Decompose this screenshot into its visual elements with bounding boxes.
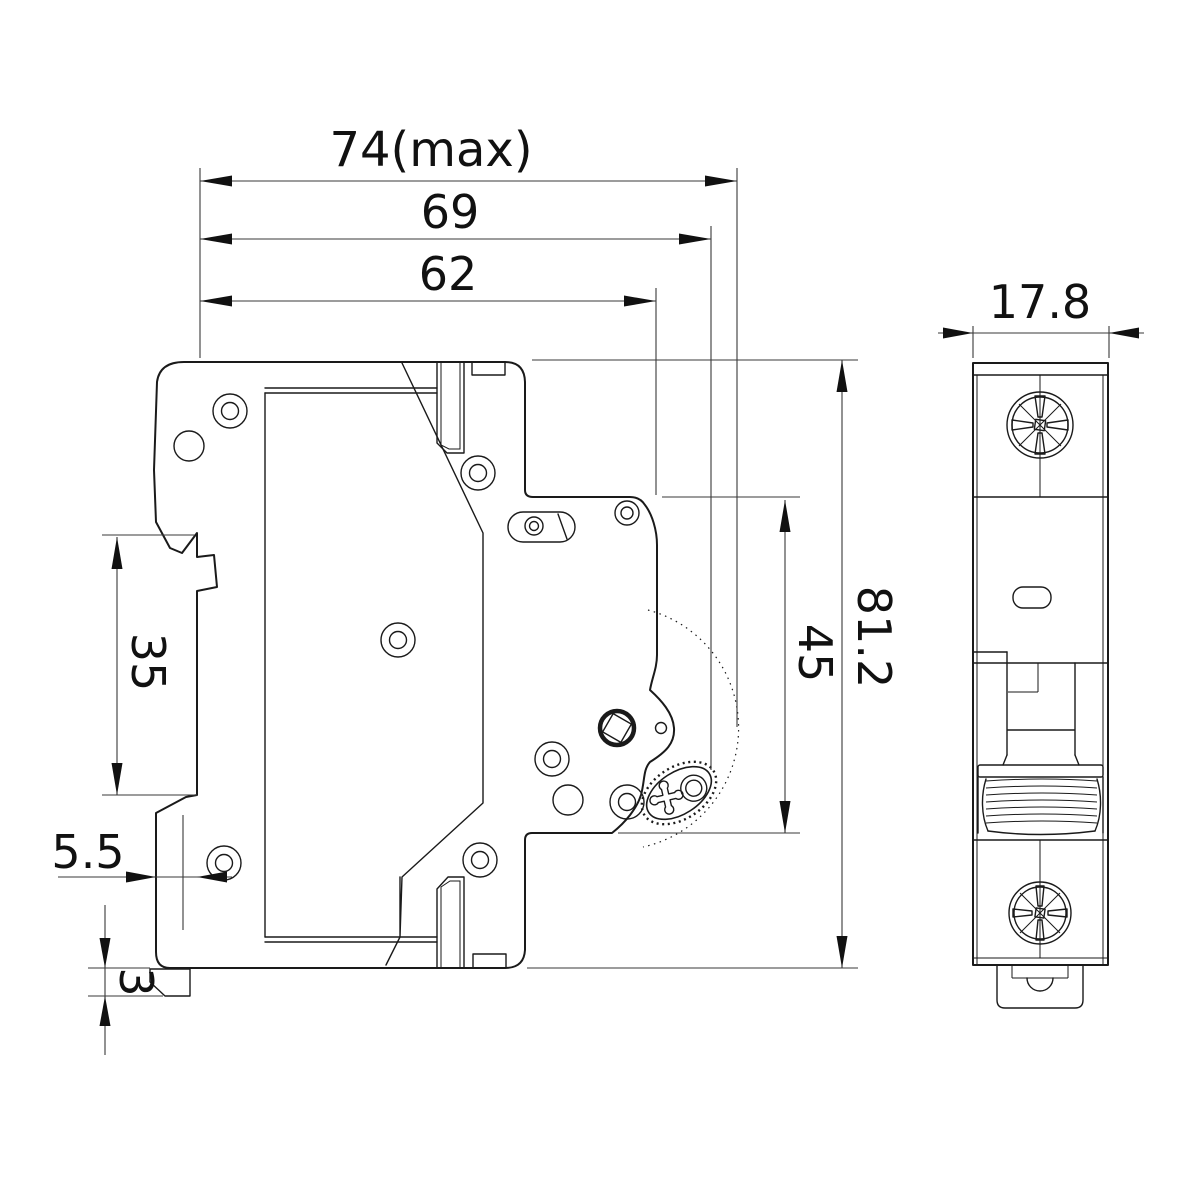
inner-top-double-line — [265, 388, 437, 393]
dim-35: 35 — [102, 535, 197, 795]
arrow-down-icon — [780, 801, 791, 833]
indicator-window — [1013, 587, 1051, 608]
top-slot-inner — [441, 363, 460, 449]
gear-knob — [630, 749, 727, 837]
toggle-recess — [973, 652, 1108, 765]
arrow-right-icon — [126, 872, 156, 883]
toggle-handle — [973, 765, 1108, 840]
arrow-left-icon — [197, 872, 227, 883]
arrow-left-icon — [200, 176, 232, 187]
dim-label-45: 45 — [788, 624, 842, 683]
arrow-left-icon — [200, 296, 232, 307]
rivet-circles — [174, 394, 667, 880]
arrow-right-icon — [705, 176, 737, 187]
arrow-up-icon — [837, 360, 848, 392]
arrow-right-icon — [943, 328, 973, 339]
dimensions: 74(max) 69 62 81.2 45 — [51, 122, 1144, 1055]
arrow-up-icon — [112, 537, 123, 569]
dim-17-8: 17.8 — [938, 275, 1144, 358]
arrow-right-icon — [679, 234, 711, 245]
bottom-slot-inner — [441, 881, 460, 967]
dim-label-69: 69 — [421, 185, 480, 239]
dim-3: 3 — [88, 905, 163, 1055]
front-face-inner-profile — [386, 363, 483, 965]
arrow-down-icon — [100, 938, 111, 968]
dim-62: 62 — [200, 247, 656, 495]
front-view — [973, 363, 1108, 1008]
dim-label-5-5: 5.5 — [51, 825, 124, 879]
arrow-down-icon — [112, 763, 123, 795]
arrow-left-icon — [1109, 328, 1139, 339]
arrow-left-icon — [200, 234, 232, 245]
side-view — [150, 362, 739, 996]
dim-5-5: 5.5 — [51, 815, 232, 930]
latch-detail — [508, 512, 575, 542]
dim-label-81-2: 81.2 — [847, 586, 901, 688]
dim-81-2: 81.2 — [527, 360, 901, 968]
arrow-up-icon — [780, 500, 791, 532]
dim-label-62: 62 — [419, 247, 478, 301]
bottom-notch-rect — [473, 954, 506, 967]
technical-drawing-canvas: 74(max) 69 62 81.2 45 — [0, 0, 1200, 1200]
inner-bottom-double-line — [265, 937, 437, 942]
din-clip-foot — [997, 965, 1083, 1008]
arrow-right-icon — [624, 296, 656, 307]
arrow-down-icon — [837, 936, 848, 968]
dim-label-3: 3 — [109, 967, 163, 996]
square-shaft — [600, 711, 634, 745]
dim-label-74max: 74(max) — [329, 122, 532, 178]
dim-label-17-8: 17.8 — [989, 275, 1091, 329]
top-notch-rect — [472, 363, 505, 375]
arrow-up-icon — [100, 996, 111, 1026]
drawing-page: 74(max) 69 62 81.2 45 — [0, 0, 1200, 1200]
side-view-outline — [154, 362, 674, 968]
dim-label-35: 35 — [121, 633, 175, 692]
